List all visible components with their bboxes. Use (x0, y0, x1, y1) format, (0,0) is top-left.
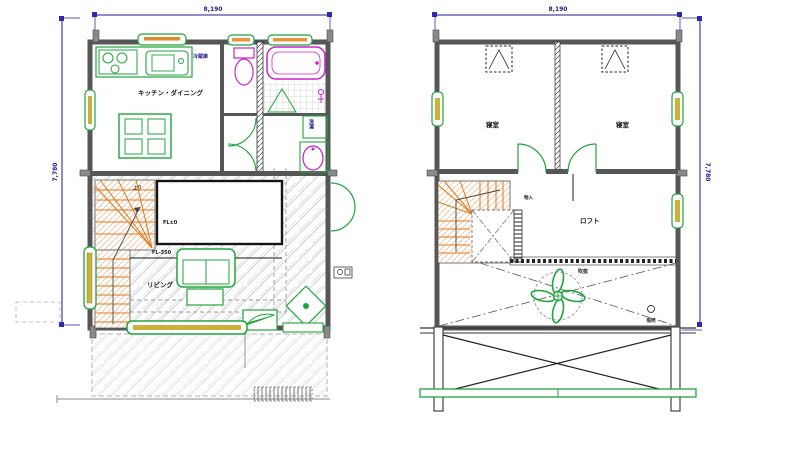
loft-label: ロフト (580, 217, 600, 225)
toilet-window-core (232, 38, 250, 42)
dimension-tick (677, 12, 682, 17)
toilet-room (228, 35, 256, 172)
left-wall-window-core-f1 (88, 96, 92, 124)
entrance-door-core (87, 253, 92, 303)
terrace-door (283, 323, 323, 332)
washroom: 洗濯 (300, 116, 328, 172)
first-floor-plan: 8,190 7,780 (16, 6, 355, 403)
bedroom-left-label: 寝室 (486, 120, 500, 129)
dimension-tick (327, 12, 332, 17)
toilet-bowl (235, 59, 253, 85)
coffee-table (187, 289, 223, 305)
stair-note: 上り (133, 184, 142, 191)
ff-heater (334, 267, 352, 278)
dimension-width-f2: 8,190 (549, 6, 568, 13)
floor-plan-drawing: 8,190 7,780 (0, 0, 812, 467)
dimension-tick (59, 16, 64, 21)
dimension-height-f1: 7,780 (52, 163, 59, 182)
dimension-tick (697, 322, 702, 327)
bath-window-core (273, 38, 307, 42)
dimension-tick (432, 12, 437, 17)
bedroom-partition-wall (555, 42, 560, 172)
dining-chair (148, 139, 165, 154)
door-gap (518, 168, 546, 175)
void-outline (157, 181, 282, 244)
wall-mid-f1 (90, 171, 328, 176)
hall-level-label: FL±0 (163, 220, 178, 226)
void-label: 吹抜 (578, 268, 589, 275)
closet-label: 物入 (524, 194, 533, 201)
dining-table (119, 114, 171, 158)
loft-ladder (514, 210, 522, 262)
kitchen-window-core (144, 37, 180, 41)
lav-door-arc (228, 144, 256, 172)
laundry-label: 洗濯 (308, 118, 314, 130)
wall-mid-f2 (437, 169, 678, 174)
dimension-tick (92, 12, 97, 17)
light-label: 照明 (647, 317, 656, 324)
wall-toilet-bath-hatched (257, 42, 263, 174)
post-right (671, 327, 680, 411)
dimension-top-f2: 8,190 (432, 6, 682, 30)
kitchen-dining-label: キッチン・ダイニング (138, 88, 204, 97)
dining-chair (125, 139, 142, 154)
bedroom-right-label: 寝室 (616, 120, 630, 129)
porch-outline (16, 302, 60, 322)
dining-chair (125, 119, 142, 134)
dimension-width-f1: 8,190 (204, 6, 223, 13)
bathroom (264, 35, 326, 112)
dimension-tick (59, 322, 64, 327)
living-label: リビング (147, 280, 174, 289)
side-door-arc (331, 183, 355, 231)
cad-canvas: 8,190 7,780 (0, 0, 812, 467)
post-left (434, 327, 443, 411)
refrigerator-label: 冷蔵庫 (193, 53, 208, 60)
door-gap (568, 168, 596, 175)
toilet-tank (234, 48, 254, 58)
living-window-core (133, 325, 241, 330)
dining-set (119, 114, 171, 158)
deck-grate (254, 387, 312, 401)
dimension-height-f2: 7,780 (704, 163, 711, 182)
wall-kitchen-toilet (220, 42, 224, 174)
washing-machine (303, 116, 327, 138)
second-floor-plan: 8,190 7,780 (420, 6, 711, 411)
dimension-tick (697, 16, 702, 21)
living-level-label: FL-350 (152, 250, 172, 256)
dimension-left-f1: 7,780 (52, 16, 80, 327)
balcony-structure (420, 327, 696, 411)
wall-toilet-lav (224, 113, 257, 116)
toilet-door-arc (228, 118, 256, 146)
bath-tile-floor (264, 82, 326, 112)
dimension-top-f1: 8,190 (92, 6, 332, 30)
deck (57, 334, 330, 403)
dining-chair (148, 119, 165, 134)
